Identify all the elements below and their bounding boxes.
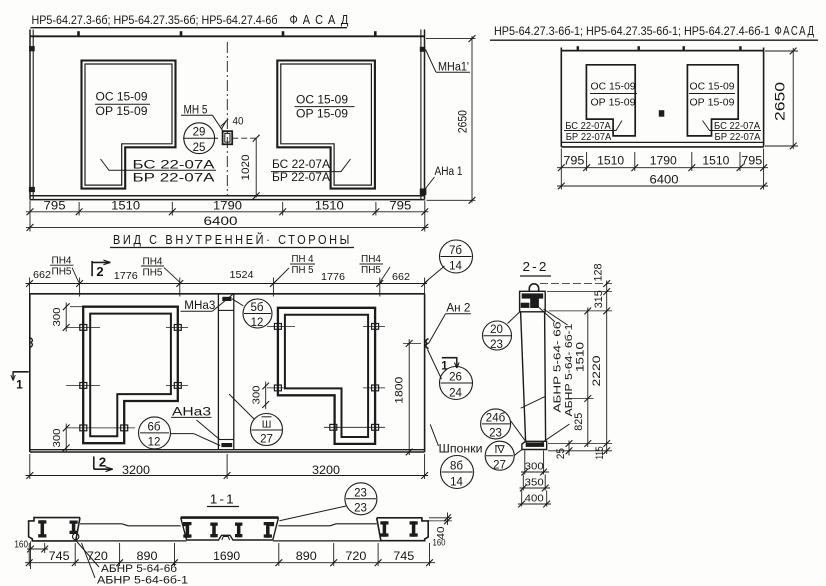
svg-text:1790: 1790	[213, 199, 242, 213]
svg-text:890: 890	[137, 549, 158, 563]
svg-text:160: 160	[433, 538, 446, 549]
svg-text:300: 300	[52, 428, 63, 447]
svg-text:БС 22-07А: БС 22-07А	[133, 160, 215, 172]
svg-text:1510: 1510	[597, 156, 624, 168]
svg-text:АБНР 5-64-6б: АБНР 5-64-6б	[101, 563, 177, 575]
svg-text:1524: 1524	[230, 269, 254, 281]
svg-text:ВИД С ВНУТРЕННЕЙ· СТОРОНЫ: ВИД С ВНУТРЕННЕЙ· СТОРОНЫ	[113, 232, 352, 247]
svg-text:1-1: 1-1	[210, 493, 236, 507]
svg-text:БР 22-07А: БР 22-07А	[566, 131, 612, 143]
svg-text:АНа 1: АНа 1	[435, 166, 463, 178]
svg-text:825: 825	[573, 413, 585, 431]
svg-text:400: 400	[525, 493, 544, 505]
svg-text:2-2: 2-2	[523, 260, 549, 274]
svg-text:ОР 15-09: ОР 15-09	[591, 97, 636, 109]
svg-text:БС 22-07А: БС 22-07А	[272, 159, 330, 171]
svg-text:720: 720	[87, 549, 108, 563]
svg-text:Ш: Ш	[262, 419, 272, 431]
svg-text:ОР 15-09: ОР 15-09	[96, 106, 148, 118]
svg-text:АБНР 5-64- 6б-1: АБНР 5-64- 6б-1	[563, 323, 575, 416]
svg-text:АБНР 5-64- 6б: АБНР 5-64- 6б	[552, 322, 564, 413]
svg-text:25: 25	[193, 142, 206, 154]
svg-text:745: 745	[49, 549, 70, 563]
svg-text:Ан 2: Ан 2	[446, 303, 470, 315]
svg-text:1776: 1776	[321, 271, 345, 283]
svg-text:2: 2	[99, 454, 106, 469]
svg-text:115: 115	[594, 447, 606, 460]
svg-text:662: 662	[33, 269, 51, 281]
svg-text:27: 27	[260, 434, 273, 446]
svg-text:ОР 15-09: ОР 15-09	[690, 97, 735, 109]
svg-text:24: 24	[449, 387, 462, 399]
svg-text:14: 14	[450, 476, 463, 488]
svg-text:795: 795	[563, 156, 584, 168]
svg-text:2650: 2650	[772, 82, 788, 121]
svg-text:2220: 2220	[591, 356, 603, 387]
svg-text:МНа3: МНа3	[184, 300, 215, 312]
svg-text:ОС 15-09: ОС 15-09	[96, 92, 148, 104]
svg-text:795: 795	[389, 199, 411, 213]
svg-text:25: 25	[555, 448, 567, 459]
svg-text:1020: 1020	[240, 155, 252, 181]
svg-text:12: 12	[251, 317, 264, 329]
svg-text:ОС 15-09: ОС 15-09	[591, 81, 636, 93]
svg-text:НР5-64.27.3-6б; НР5-64.27.35-6: НР5-64.27.3-6б; НР5-64.27.35-6б; НР5-64.…	[32, 13, 278, 27]
svg-text:3200: 3200	[122, 463, 150, 477]
svg-text:23: 23	[354, 487, 367, 499]
svg-text:1510: 1510	[574, 342, 586, 372]
svg-text:23: 23	[489, 427, 502, 439]
svg-text:МН 5: МН 5	[184, 105, 208, 117]
svg-text:662: 662	[392, 271, 410, 283]
svg-text:ОС 15-09: ОС 15-09	[690, 81, 735, 93]
svg-text:ФАСАД: ФАСАД	[775, 24, 816, 38]
svg-text:2650: 2650	[456, 110, 470, 133]
svg-text:720: 720	[345, 549, 366, 563]
svg-text:160: 160	[14, 539, 28, 550]
svg-text:6б: 6б	[148, 421, 161, 433]
svg-text:12: 12	[148, 436, 161, 448]
svg-text:6400: 6400	[204, 214, 238, 228]
svg-text:БР 22-07А: БР 22-07А	[715, 131, 761, 143]
svg-text:350: 350	[525, 477, 544, 489]
svg-text:БР 22-07А: БР 22-07А	[133, 173, 215, 185]
svg-text:29: 29	[193, 127, 206, 139]
svg-text:НР5-64.27.3-6б-1; НР5-64.27.35: НР5-64.27.3-6б-1; НР5-64.27.35-6б-1; НР5…	[494, 24, 770, 38]
svg-text:1510: 1510	[315, 199, 344, 213]
svg-text:23: 23	[354, 502, 367, 514]
svg-text:ФАСАД: ФАСАД	[290, 13, 354, 27]
svg-text:745: 745	[393, 549, 414, 563]
svg-text:24б: 24б	[486, 412, 506, 424]
svg-text:795: 795	[741, 156, 762, 168]
svg-text:1690: 1690	[213, 549, 240, 563]
svg-text:ПН4: ПН4	[361, 254, 381, 265]
svg-text:ПН 5: ПН 5	[292, 265, 314, 276]
svg-text:1: 1	[16, 378, 23, 392]
svg-text:315: 315	[593, 290, 605, 308]
svg-text:2: 2	[96, 264, 103, 279]
svg-text:1510: 1510	[111, 199, 140, 213]
svg-text:20: 20	[490, 324, 503, 336]
svg-text:Шпонки: Шпонки	[439, 444, 483, 456]
svg-text:795: 795	[44, 199, 66, 213]
svg-text:890: 890	[296, 549, 317, 563]
svg-text:БР 22-07А: БР 22-07А	[272, 172, 330, 184]
svg-text:5б: 5б	[251, 302, 264, 314]
svg-text:1800: 1800	[394, 377, 406, 404]
svg-text:1510: 1510	[702, 156, 729, 168]
svg-text:40: 40	[233, 116, 244, 128]
svg-text:ПН5: ПН5	[52, 267, 72, 278]
svg-text:ОР 15-09: ОР 15-09	[296, 109, 348, 121]
svg-text:ПН 4: ПН 4	[292, 254, 314, 265]
svg-text:IV: IV	[495, 444, 505, 456]
svg-text:23: 23	[490, 339, 503, 351]
svg-text:300: 300	[252, 385, 263, 404]
svg-text:ОС 15-09: ОС 15-09	[296, 95, 348, 107]
svg-text:300: 300	[525, 461, 544, 473]
svg-text:300: 300	[52, 307, 63, 326]
svg-text:АНа3: АНа3	[172, 407, 211, 419]
svg-text:3200: 3200	[312, 463, 340, 477]
svg-text:АБНР 5-64-6б-1: АБНР 5-64-6б-1	[97, 575, 188, 586]
svg-text:128: 128	[593, 264, 605, 282]
svg-text:27: 27	[493, 460, 506, 472]
svg-text:1776: 1776	[114, 270, 138, 282]
svg-text:ПН5: ПН5	[143, 268, 163, 279]
svg-text:7б: 7б	[449, 245, 462, 257]
svg-text:ПН5: ПН5	[361, 265, 381, 276]
svg-text:1790: 1790	[650, 156, 677, 168]
svg-text:8б: 8б	[450, 461, 463, 473]
svg-text:6400: 6400	[650, 175, 679, 187]
svg-text:26: 26	[449, 372, 462, 384]
svg-text:14: 14	[449, 261, 462, 273]
